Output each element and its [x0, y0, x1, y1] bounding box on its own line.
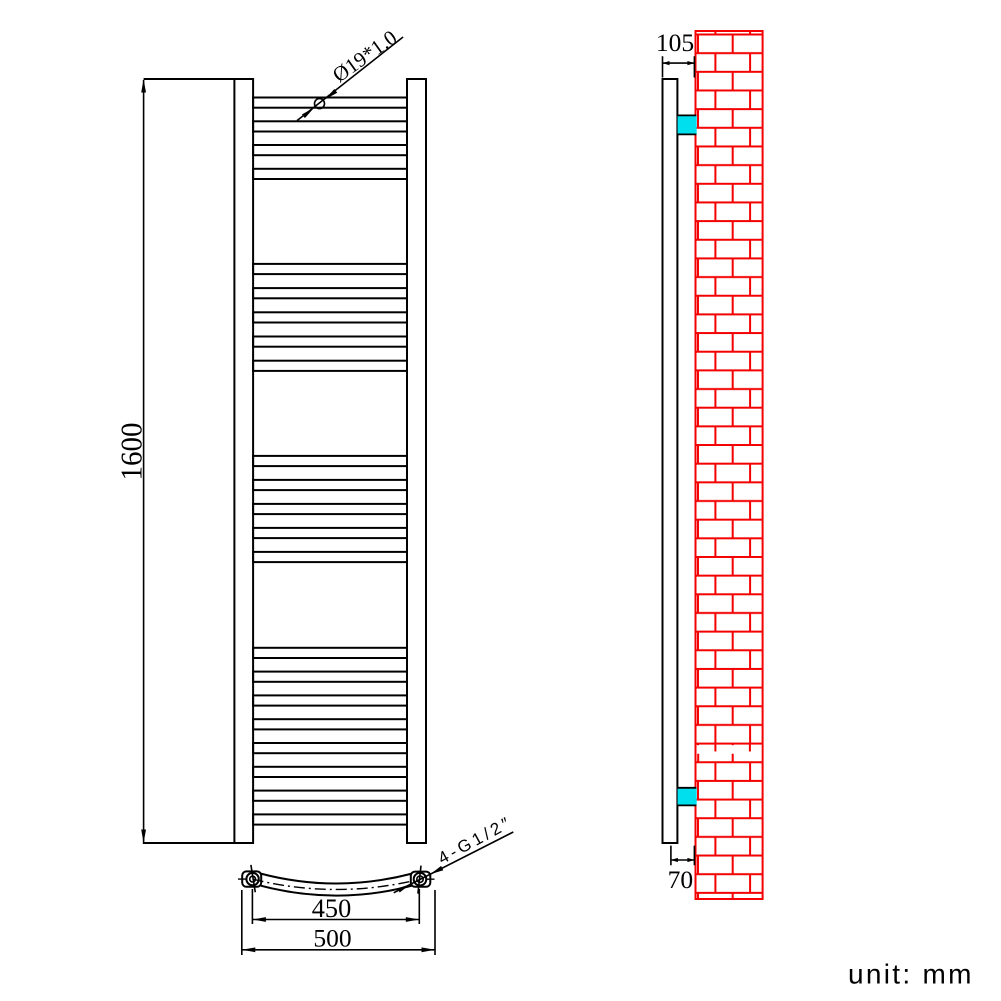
svg-text:450: 450 [312, 894, 351, 923]
svg-text:1600: 1600 [114, 423, 149, 481]
svg-text:unit: mm: unit: mm [848, 959, 974, 990]
svg-text:105: 105 [656, 28, 694, 57]
svg-text:500: 500 [313, 924, 351, 953]
svg-text:70: 70 [668, 865, 694, 894]
